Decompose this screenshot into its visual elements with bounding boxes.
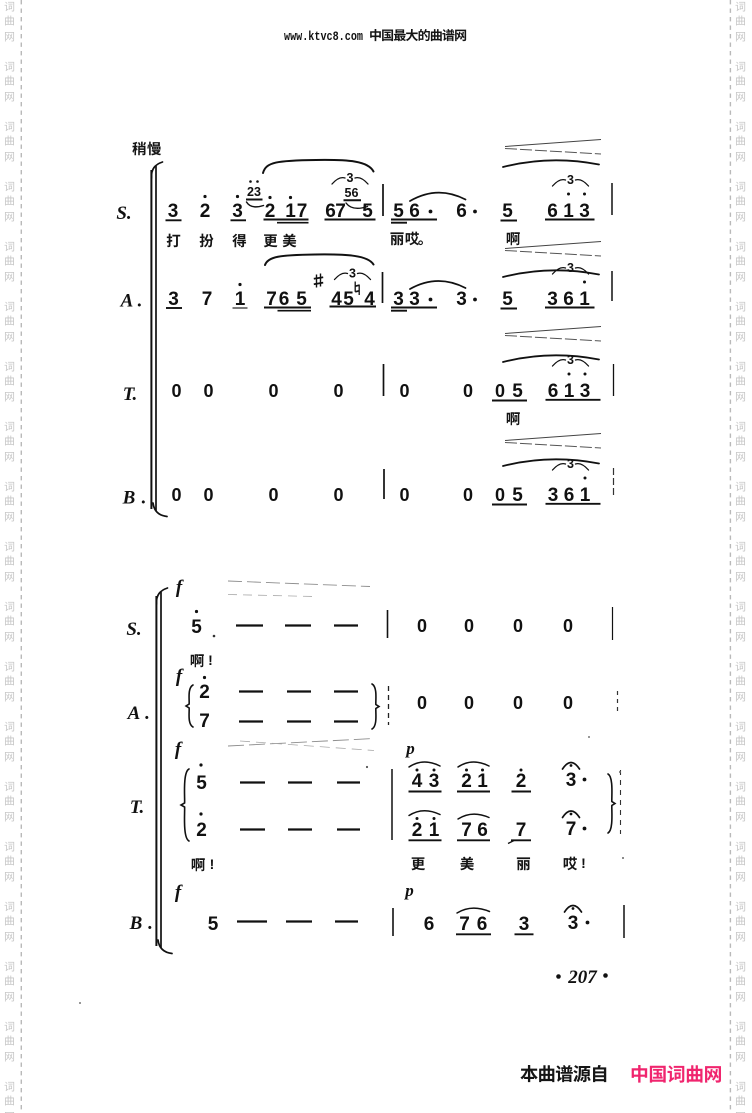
- svg-text:0: 0: [268, 485, 278, 505]
- svg-text:3: 3: [519, 914, 530, 935]
- svg-text:0: 0: [333, 485, 343, 505]
- svg-text:3: 3: [232, 201, 243, 222]
- svg-text:4: 4: [412, 771, 423, 792]
- svg-text:T.: T.: [130, 797, 145, 818]
- svg-text:7: 7: [199, 711, 210, 732]
- svg-text:0: 0: [268, 381, 278, 401]
- svg-text:0: 0: [203, 381, 213, 401]
- svg-text:5: 5: [196, 773, 207, 794]
- svg-text:3: 3: [347, 171, 354, 185]
- svg-text:3: 3: [349, 267, 356, 281]
- svg-text:1: 1: [477, 771, 488, 792]
- svg-text:3: 3: [568, 913, 579, 934]
- svg-text:0: 0: [399, 381, 409, 401]
- svg-text:2: 2: [412, 820, 423, 841]
- svg-text:2: 2: [199, 682, 210, 703]
- svg-text:5: 5: [191, 617, 202, 638]
- svg-text:1: 1: [235, 289, 246, 310]
- svg-text:S.: S.: [126, 619, 141, 640]
- svg-text:A: A: [120, 291, 134, 312]
- svg-text:0: 0: [495, 381, 505, 401]
- svg-text:56: 56: [345, 186, 359, 200]
- svg-text:5: 5: [502, 201, 513, 222]
- svg-text:23: 23: [247, 185, 261, 199]
- svg-text:3: 3: [567, 173, 574, 187]
- svg-text:0: 0: [171, 485, 181, 505]
- svg-text:0: 0: [563, 693, 573, 713]
- svg-text:3: 3: [168, 201, 179, 222]
- svg-text:p: p: [403, 881, 414, 900]
- svg-text:T.: T.: [123, 384, 138, 405]
- svg-text:.: .: [138, 291, 143, 312]
- svg-text:7: 7: [461, 820, 472, 841]
- svg-text:3: 3: [429, 771, 440, 792]
- svg-text:www.ktvc8.com: www.ktvc8.com: [284, 30, 363, 44]
- svg-text:!: !: [208, 652, 213, 668]
- svg-text:.: .: [148, 913, 153, 934]
- svg-text:.: .: [145, 703, 150, 724]
- svg-text:7: 7: [566, 819, 577, 840]
- svg-text:!: !: [581, 855, 586, 871]
- svg-text:7: 7: [202, 289, 213, 310]
- svg-text:0: 0: [417, 616, 427, 636]
- svg-text:6: 6: [477, 820, 488, 841]
- svg-text:B: B: [122, 488, 136, 509]
- svg-text:0: 0: [463, 381, 473, 401]
- svg-text:1: 1: [429, 820, 440, 841]
- svg-text:6: 6: [456, 201, 467, 222]
- svg-text:p: p: [404, 739, 415, 758]
- svg-text:0: 0: [417, 693, 427, 713]
- svg-text:6: 6: [424, 914, 435, 935]
- svg-text:0: 0: [464, 693, 474, 713]
- svg-text:0: 0: [463, 485, 473, 505]
- svg-text:2: 2: [461, 771, 472, 792]
- svg-text:7: 7: [516, 820, 527, 841]
- svg-text:0: 0: [399, 485, 409, 505]
- svg-text:0: 0: [464, 616, 474, 636]
- svg-text:3: 3: [168, 289, 179, 310]
- svg-text:5: 5: [502, 289, 513, 310]
- svg-text:S.: S.: [116, 203, 131, 224]
- svg-text:B: B: [129, 913, 143, 934]
- svg-text:207: 207: [567, 967, 598, 988]
- svg-text:2: 2: [196, 820, 207, 841]
- svg-text:3: 3: [456, 289, 467, 310]
- svg-text:6: 6: [477, 914, 488, 935]
- svg-text:3: 3: [567, 261, 574, 275]
- svg-text:7: 7: [459, 914, 470, 935]
- svg-text:0: 0: [203, 485, 213, 505]
- svg-text:2: 2: [200, 201, 211, 222]
- svg-text:!: !: [210, 856, 215, 872]
- svg-text:0: 0: [513, 693, 523, 713]
- svg-text:5: 5: [512, 381, 523, 402]
- svg-text:0: 0: [513, 616, 523, 636]
- svg-text:0: 0: [333, 381, 343, 401]
- svg-text:0: 0: [171, 381, 181, 401]
- svg-text:A: A: [127, 703, 141, 724]
- svg-text:3: 3: [566, 770, 577, 791]
- svg-text:0: 0: [563, 616, 573, 636]
- svg-text:5: 5: [208, 914, 219, 935]
- svg-text:.: .: [142, 488, 147, 509]
- svg-text:2: 2: [516, 771, 527, 792]
- svg-text:5: 5: [512, 485, 523, 506]
- svg-text:0: 0: [495, 485, 505, 505]
